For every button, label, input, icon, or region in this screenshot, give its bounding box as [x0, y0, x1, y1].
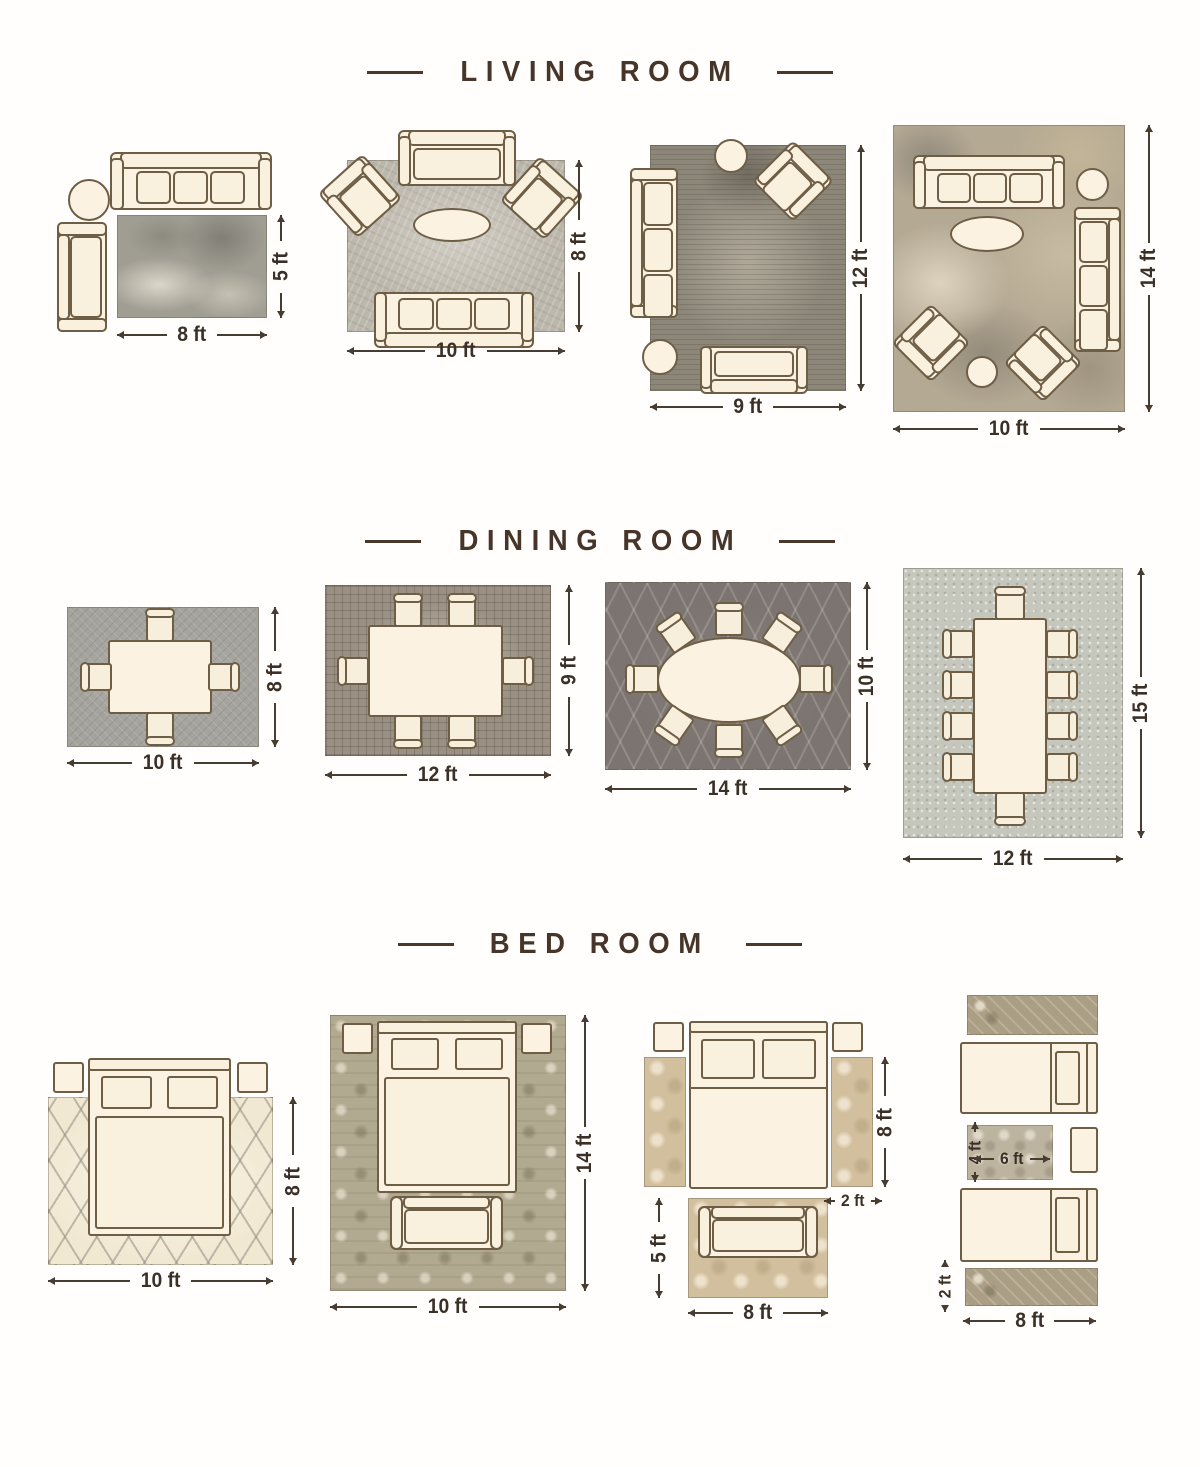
settee-arm — [57, 318, 107, 332]
dining-chair — [1046, 712, 1074, 740]
pillow — [701, 1039, 755, 1079]
dimension-label: 15 ft — [1119, 677, 1162, 729]
dining-chair — [448, 715, 476, 745]
bed — [377, 1021, 517, 1193]
dimension-line — [884, 1148, 886, 1187]
height-dimension: 9 ft — [556, 585, 582, 756]
dining-chair — [1046, 753, 1074, 781]
runner-height-dimension: 8 ft — [872, 1057, 898, 1187]
sofa-arm — [521, 292, 534, 342]
dimension-label: 14 ft — [563, 1127, 606, 1179]
cushion — [1079, 221, 1108, 263]
dimension-label: 8 ft — [277, 1155, 309, 1207]
dimension-label: 10 ft — [135, 752, 191, 773]
dimension-line — [67, 762, 132, 764]
width-dimension: 10 ft — [347, 340, 565, 361]
section-title-text: DINING ROOM — [458, 525, 742, 558]
dimension-line — [330, 1306, 417, 1308]
blanket — [95, 1116, 224, 1229]
loveseat — [700, 346, 808, 394]
dining-table — [973, 618, 1047, 794]
height-dimension: 8 ft — [566, 160, 592, 332]
width-dimension: 10 ft — [48, 1270, 273, 1291]
dimension-label: 2 ft — [932, 1266, 958, 1306]
dining-chair — [146, 612, 174, 642]
pillow — [167, 1076, 218, 1109]
blanket — [384, 1077, 510, 1186]
dimension-line — [274, 703, 276, 747]
cushion — [210, 171, 245, 204]
dimension-line — [1140, 729, 1142, 838]
dimension-line — [860, 294, 862, 391]
round-side-table — [1076, 168, 1109, 201]
dimension-line — [759, 788, 851, 790]
dimension-label: 8 ft — [735, 1302, 781, 1323]
sheet-fold-line — [691, 1087, 826, 1089]
dimension-line — [191, 1280, 273, 1282]
dimension-line — [974, 1172, 976, 1182]
dimension-label: 9 ft — [725, 396, 771, 417]
dining-chair — [629, 665, 659, 693]
cushion — [712, 1219, 804, 1252]
dimension-line — [963, 1320, 1005, 1322]
dimension-text: 8 ft — [283, 1167, 304, 1196]
cushion — [643, 274, 673, 318]
dimension-line — [280, 293, 282, 319]
dimension-line — [117, 334, 167, 336]
title-dash — [777, 71, 833, 74]
nightstand — [521, 1023, 552, 1054]
dimension-label: 6 ft — [996, 1150, 1029, 1167]
sofa-back — [710, 379, 798, 394]
height-dimension: 14 ft — [1136, 125, 1162, 412]
dining-chair — [394, 597, 422, 627]
dimension-line — [347, 350, 425, 352]
sheet-fold-line — [1050, 1044, 1052, 1112]
sofa — [913, 155, 1065, 209]
nightstand — [237, 1062, 268, 1093]
dimension-label: 12 ft — [839, 242, 882, 294]
round-side-table — [68, 179, 110, 221]
dimension-line — [1040, 428, 1125, 430]
dimension-line — [194, 762, 259, 764]
dimension-line — [584, 1015, 586, 1127]
runner-rug — [965, 1268, 1098, 1306]
bench-arm — [698, 1206, 711, 1258]
bench — [390, 1196, 503, 1250]
rug — [117, 215, 267, 318]
height-dimension: 5 ft — [268, 215, 294, 318]
dimension-label: 10 ft — [981, 418, 1037, 439]
dining-chair — [946, 753, 974, 781]
width-dimension: 12 ft — [903, 848, 1123, 869]
pillow — [1055, 1051, 1080, 1105]
runner-width-dimension: 8 ft — [963, 1310, 1096, 1331]
section-title-text: BED ROOM — [490, 928, 710, 961]
dining-chair — [146, 712, 174, 742]
twin-bed — [960, 1042, 1098, 1114]
cushion — [937, 173, 971, 203]
dimension-line — [605, 788, 697, 790]
pillow — [101, 1076, 152, 1109]
cushion — [643, 182, 673, 226]
dimension-line — [584, 1179, 586, 1291]
dimension-label: 2 ft — [837, 1192, 870, 1209]
oval-coffee-table — [950, 216, 1024, 252]
dimension-line — [893, 428, 978, 430]
accent-rug-height-dimension: 5 ft — [646, 1198, 672, 1298]
runner-height-dimension: 2 ft — [932, 1260, 958, 1312]
cushion — [398, 298, 434, 330]
dining-chair — [208, 663, 236, 691]
cushion — [1079, 309, 1108, 351]
dimension-line — [783, 1312, 828, 1314]
dining-chair — [1046, 671, 1074, 699]
dimension-text: 5 ft — [271, 252, 292, 281]
height-dimension: 15 ft — [1128, 568, 1154, 838]
cushion — [1009, 173, 1043, 203]
section-title-dining-room: DINING ROOM — [0, 525, 1200, 558]
height-dimension: 14 ft — [572, 1015, 598, 1291]
section-title-text: LIVING ROOM — [460, 56, 739, 89]
pillow — [1055, 1197, 1080, 1253]
dimension-label: 10 ft — [420, 1296, 476, 1317]
dimension-label: 12 ft — [410, 764, 466, 785]
cushion — [173, 171, 208, 204]
headboard — [88, 1058, 231, 1071]
dimension-text: 9 ft — [559, 656, 580, 685]
bench-arm — [390, 1196, 403, 1250]
sofa-arm — [258, 158, 272, 210]
cushion — [714, 351, 794, 377]
dining-chair — [448, 597, 476, 627]
dimension-label: 8 ft — [869, 1096, 901, 1148]
sofa-back — [120, 152, 262, 169]
dining-chair — [946, 671, 974, 699]
center-rug-width-dimension: 6 ft — [974, 1150, 1050, 1167]
nightstand — [832, 1022, 863, 1052]
cushion — [404, 1209, 489, 1244]
cushion — [1079, 265, 1108, 307]
bed — [88, 1058, 231, 1236]
sofa-arm — [398, 136, 411, 186]
dimension-text: 8 ft — [875, 1108, 896, 1137]
sofa-arm — [913, 161, 926, 209]
sheet-fold-line — [1050, 1190, 1052, 1260]
dimension-line — [903, 858, 982, 860]
pillow — [455, 1038, 503, 1070]
section-title-bed-room: BED ROOM — [0, 928, 1200, 961]
bench-back — [711, 1206, 805, 1219]
dining-chair — [502, 657, 530, 685]
dimension-line — [325, 774, 407, 776]
section-title-living-room: LIVING ROOM — [0, 56, 1200, 89]
dimension-line — [1148, 295, 1150, 413]
width-dimension: 12 ft — [325, 764, 551, 785]
title-dash — [779, 540, 835, 543]
dining-chair — [946, 630, 974, 658]
title-dash — [746, 943, 802, 946]
dimension-line — [487, 350, 565, 352]
dimension-line — [824, 1200, 835, 1202]
dimension-line — [944, 1260, 946, 1266]
pillow — [762, 1039, 816, 1079]
bench-arm — [490, 1196, 503, 1250]
dimension-line — [479, 1306, 566, 1308]
dimension-label: 5 ft — [265, 241, 297, 293]
cushion — [474, 298, 510, 330]
title-dash — [398, 943, 454, 946]
dimension-label: 8 ft — [169, 324, 215, 345]
sofa-back — [1108, 218, 1121, 341]
dining-chair — [715, 606, 743, 636]
nightstand — [53, 1062, 84, 1093]
loveseat — [398, 130, 516, 186]
oval-coffee-table — [413, 208, 491, 242]
dimension-line — [1140, 568, 1142, 677]
dimension-line — [292, 1207, 294, 1265]
cushion — [136, 171, 171, 204]
dimension-label: 9 ft — [553, 645, 585, 697]
dining-chair — [799, 665, 829, 693]
dimension-text: 8 ft — [569, 232, 590, 261]
width-dimension: 8 ft — [117, 324, 267, 345]
dining-chair — [394, 715, 422, 745]
sofa — [630, 168, 678, 318]
dimension-text: 14 ft — [1139, 249, 1160, 289]
dimension-line — [1148, 125, 1150, 243]
dimension-line — [292, 1097, 294, 1155]
dimension-line — [274, 607, 276, 651]
width-dimension: 10 ft — [893, 418, 1125, 439]
dining-chair — [715, 724, 743, 754]
dimension-line — [884, 1057, 886, 1096]
dimension-line — [1054, 1320, 1096, 1322]
sofa — [1074, 207, 1121, 352]
dimension-line — [658, 1274, 660, 1298]
sofa-back — [923, 155, 1055, 171]
dining-chair — [84, 663, 112, 691]
dimension-line — [871, 1200, 882, 1202]
dimension-line — [860, 145, 862, 242]
headboard — [689, 1021, 828, 1033]
settee — [57, 222, 107, 332]
dining-chair — [946, 712, 974, 740]
settee-back — [57, 234, 70, 320]
sofa-arm — [796, 346, 808, 389]
title-dash — [365, 540, 421, 543]
runner-rug — [967, 995, 1098, 1035]
dimension-label: 10 ft — [845, 650, 888, 702]
dimension-line — [568, 697, 570, 757]
accent-rug-width-dimension: 8 ft — [688, 1302, 828, 1323]
dimension-line — [48, 1280, 130, 1282]
dimension-label: 14 ft — [1127, 243, 1170, 295]
dimension-text: 12 ft — [851, 248, 872, 288]
bench-back — [403, 1196, 490, 1209]
dimension-text: 15 ft — [1131, 683, 1152, 723]
dimension-line — [568, 585, 570, 645]
cushion — [70, 236, 102, 318]
width-dimension: 9 ft — [650, 396, 846, 417]
rug-size-guide: LIVING ROOM 5 ft 8 ft — [0, 0, 1200, 1467]
dimension-line — [974, 1158, 994, 1160]
dimension-text: 5 ft — [649, 1234, 670, 1263]
round-side-table — [714, 139, 748, 173]
sofa-back — [630, 179, 643, 307]
dimension-label: 10 ft — [428, 340, 484, 361]
sofa-arm — [700, 346, 712, 389]
headboard — [377, 1021, 517, 1034]
dimension-label: 12 ft — [985, 848, 1041, 869]
cushion — [973, 173, 1007, 203]
round-side-table — [966, 356, 998, 388]
dimension-line — [1044, 858, 1123, 860]
dimension-label: 5 ft — [643, 1222, 675, 1274]
dining-table — [108, 640, 212, 714]
headboard — [1086, 1188, 1098, 1262]
dimension-line — [578, 160, 580, 220]
dimension-label: 8 ft — [563, 220, 595, 272]
height-dimension: 8 ft — [280, 1097, 306, 1265]
dimension-line — [469, 774, 551, 776]
runner-rug — [644, 1057, 686, 1187]
round-side-table — [642, 339, 678, 375]
sofa-back — [408, 130, 506, 146]
dimension-label: 14 ft — [700, 778, 756, 799]
width-dimension: 10 ft — [330, 1296, 566, 1317]
dimension-label: 8 ft — [1007, 1310, 1053, 1331]
sofa-arm — [503, 136, 516, 186]
sofa-arm — [374, 292, 387, 342]
height-dimension: 10 ft — [854, 582, 880, 770]
nightstand — [342, 1023, 373, 1054]
runner-rug — [831, 1057, 873, 1187]
bed — [689, 1021, 828, 1189]
dining-table — [368, 625, 503, 717]
dimension-text: 14 ft — [575, 1133, 596, 1173]
nightstand — [653, 1022, 684, 1052]
dimension-text: 8 ft — [265, 663, 286, 692]
dimension-text: 2 ft — [937, 1274, 954, 1297]
sofa — [110, 152, 272, 210]
twin-bed — [960, 1188, 1098, 1262]
dining-chair — [1046, 630, 1074, 658]
dimension-line — [944, 1306, 946, 1312]
dimension-line — [217, 334, 267, 336]
nightstand — [1070, 1127, 1098, 1173]
cushion — [643, 228, 673, 272]
dimension-line — [688, 1312, 733, 1314]
dimension-text: 10 ft — [857, 656, 878, 696]
dining-chair — [995, 792, 1025, 822]
cushion — [413, 148, 501, 180]
bench — [698, 1206, 818, 1258]
headboard — [1086, 1042, 1098, 1114]
dimension-line — [866, 582, 868, 650]
dimension-line — [1030, 1158, 1050, 1160]
width-dimension: 10 ft — [67, 752, 259, 773]
cushion — [436, 298, 472, 330]
sofa-arm — [1052, 161, 1065, 209]
dimension-line — [866, 702, 868, 770]
width-dimension: 14 ft — [605, 778, 851, 799]
dimension-line — [773, 406, 846, 408]
dining-chair — [995, 590, 1025, 620]
dining-chair — [341, 657, 369, 685]
sofa-arm — [110, 158, 124, 210]
dimension-line — [578, 272, 580, 332]
dimension-label: 8 ft — [259, 651, 291, 703]
runner-width-dimension: 2 ft — [824, 1192, 882, 1209]
bench-arm — [805, 1206, 818, 1258]
height-dimension: 12 ft — [848, 145, 874, 391]
dimension-line — [650, 406, 723, 408]
height-dimension: 8 ft — [262, 607, 288, 747]
dimension-line — [658, 1198, 660, 1222]
dimension-line — [280, 215, 282, 241]
dimension-line — [974, 1122, 976, 1132]
dimension-label: 10 ft — [132, 1270, 188, 1291]
pillow — [391, 1038, 439, 1070]
title-dash — [367, 71, 423, 74]
